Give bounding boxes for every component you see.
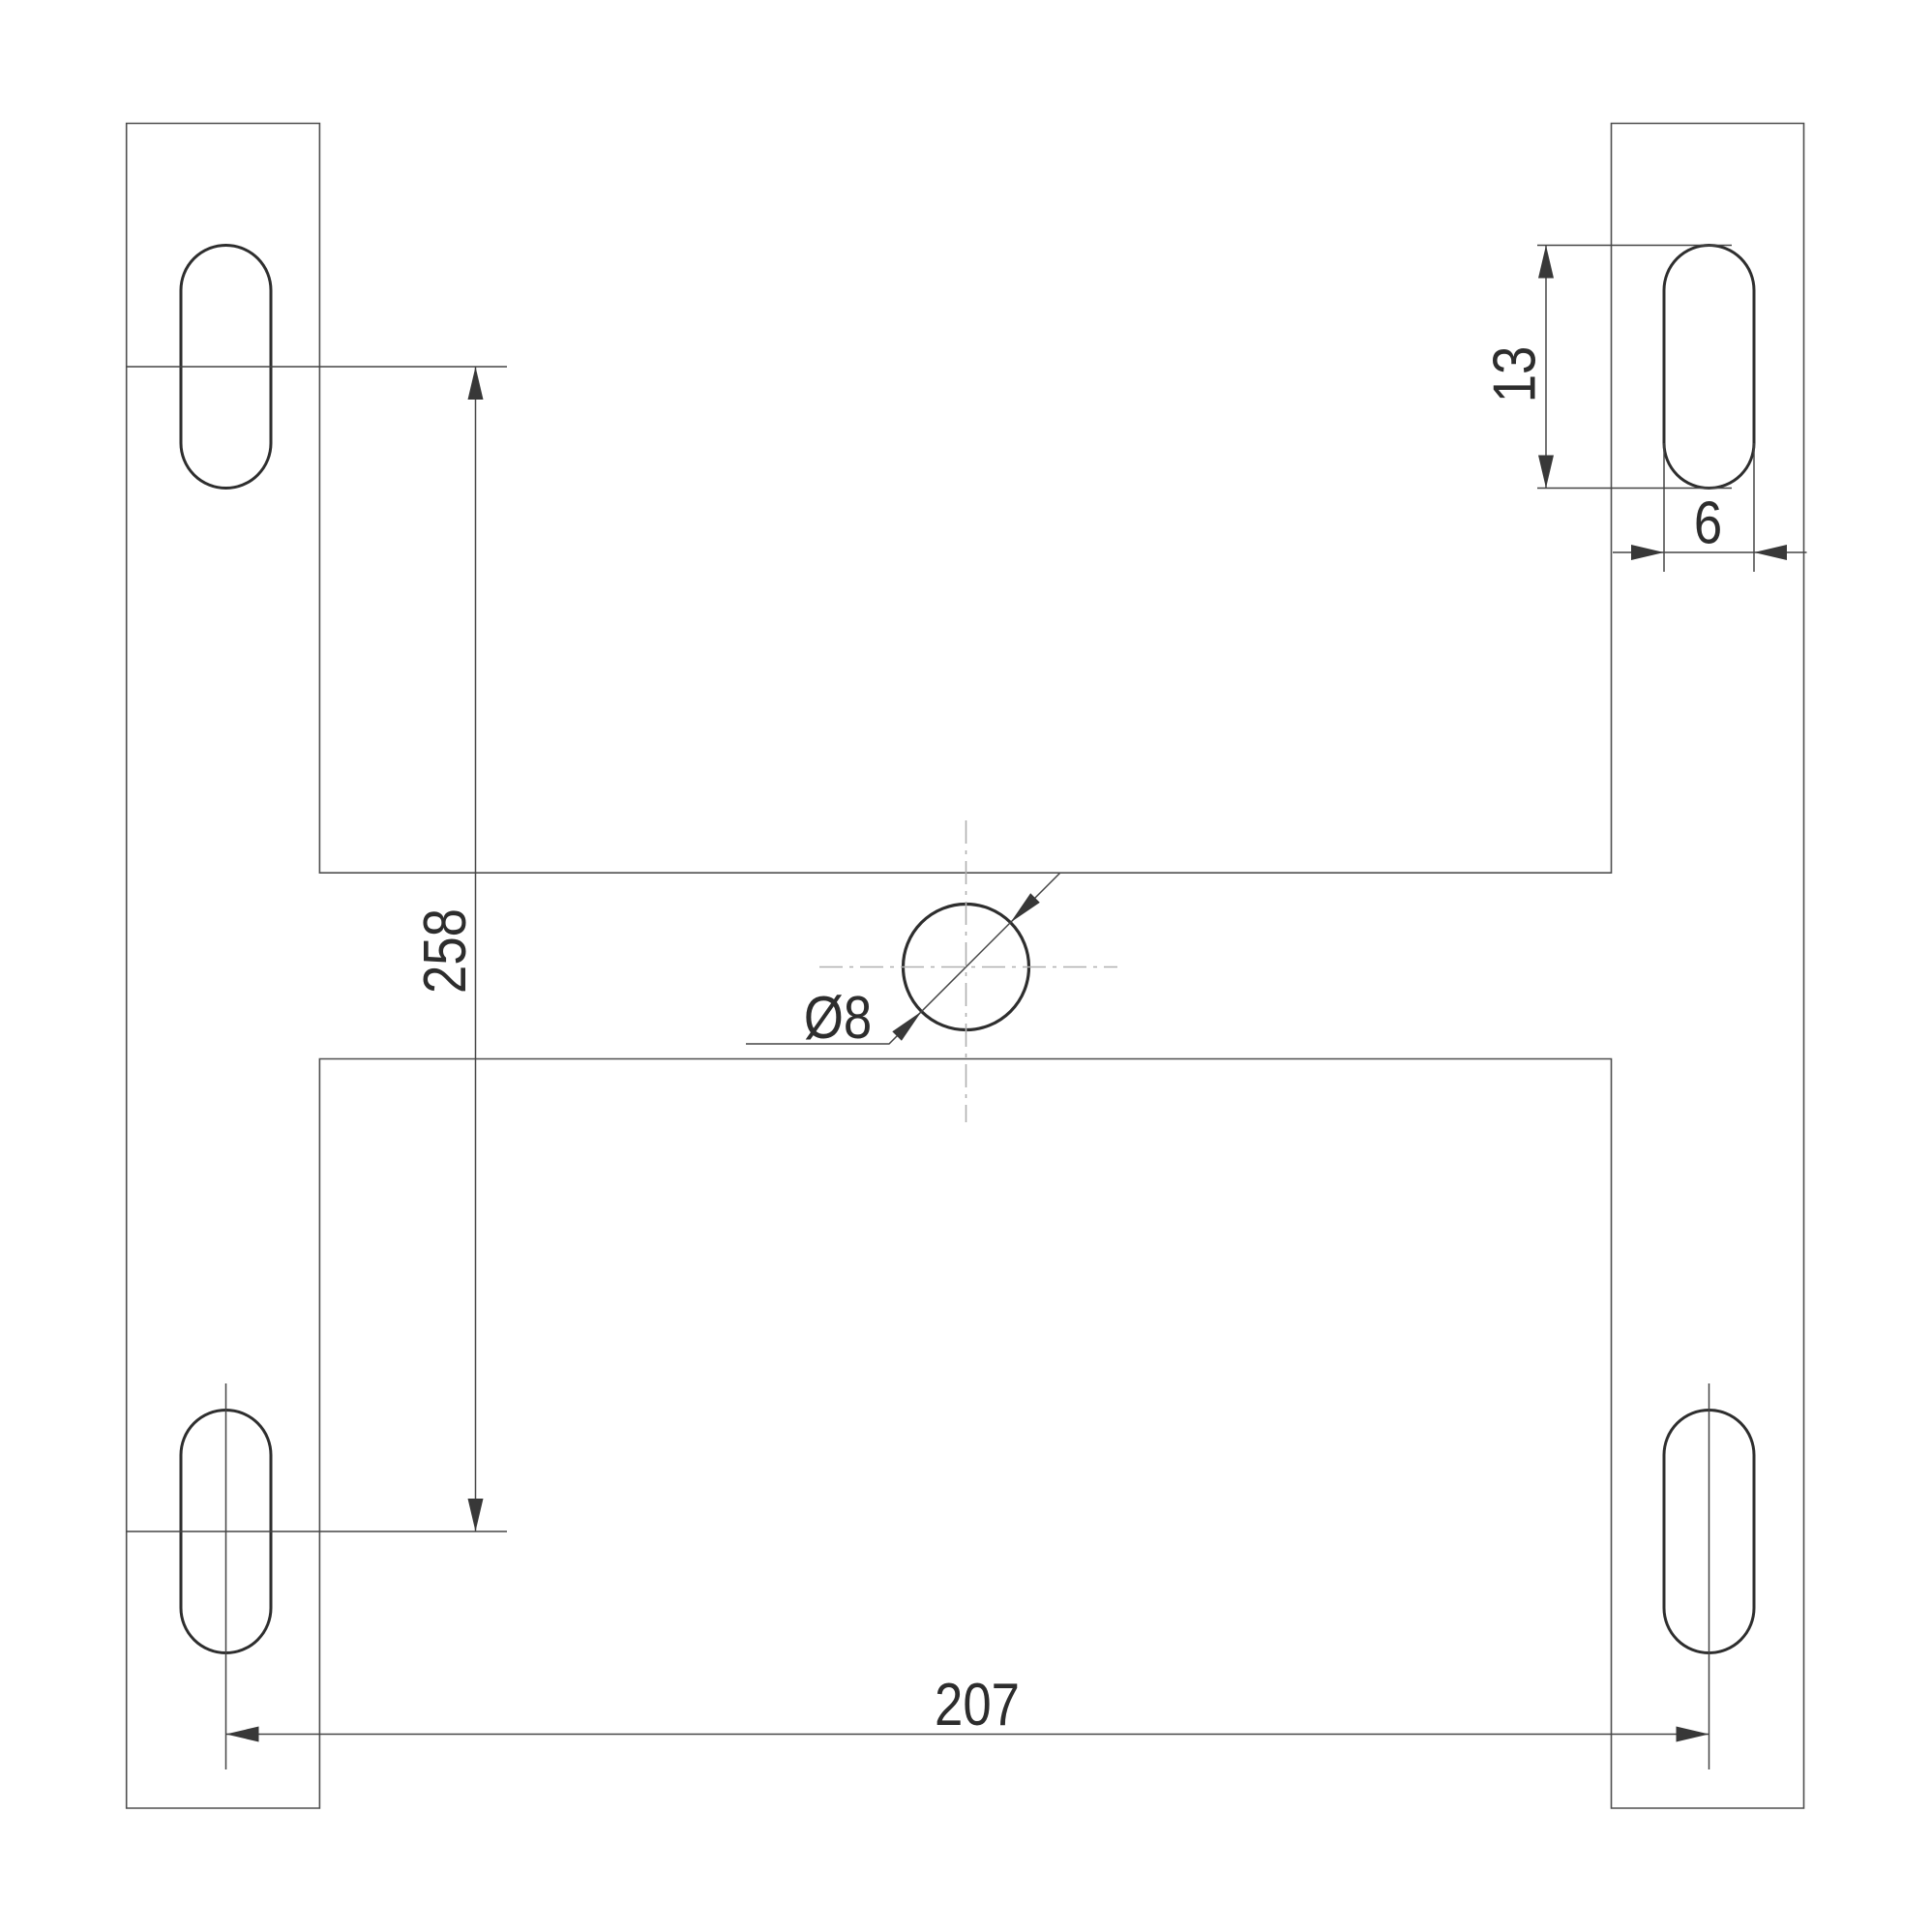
svg-text:Ø8: Ø8 — [804, 985, 872, 1052]
svg-text:258: 258 — [412, 908, 479, 994]
svg-text:13: 13 — [1482, 346, 1549, 403]
svg-text:6: 6 — [1694, 490, 1722, 557]
svg-text:207: 207 — [935, 1672, 1020, 1739]
